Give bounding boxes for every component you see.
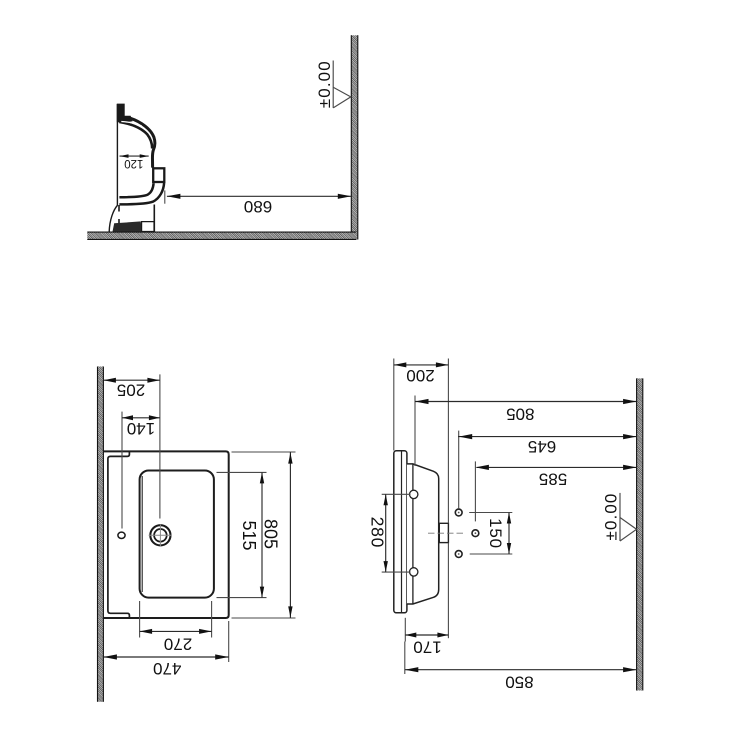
svg-text:200: 200 — [406, 366, 434, 385]
svg-text:±0.00: ±0.00 — [315, 60, 334, 108]
svg-text:170: 170 — [413, 638, 441, 657]
svg-text:850: 850 — [505, 673, 533, 692]
svg-text:270: 270 — [164, 635, 192, 654]
svg-text:680: 680 — [244, 197, 272, 216]
svg-text:140: 140 — [127, 419, 155, 438]
svg-text:120: 120 — [124, 157, 143, 169]
svg-text:515: 515 — [239, 520, 259, 550]
svg-text:±0.00: ±0.00 — [601, 493, 620, 541]
svg-text:805: 805 — [260, 519, 280, 549]
svg-text:645: 645 — [528, 437, 556, 456]
svg-text:585: 585 — [539, 469, 567, 488]
svg-text:470: 470 — [153, 659, 181, 678]
svg-text:280: 280 — [368, 517, 388, 549]
svg-text:805: 805 — [506, 405, 534, 424]
svg-text:205: 205 — [117, 380, 145, 399]
svg-text:150: 150 — [486, 518, 505, 549]
